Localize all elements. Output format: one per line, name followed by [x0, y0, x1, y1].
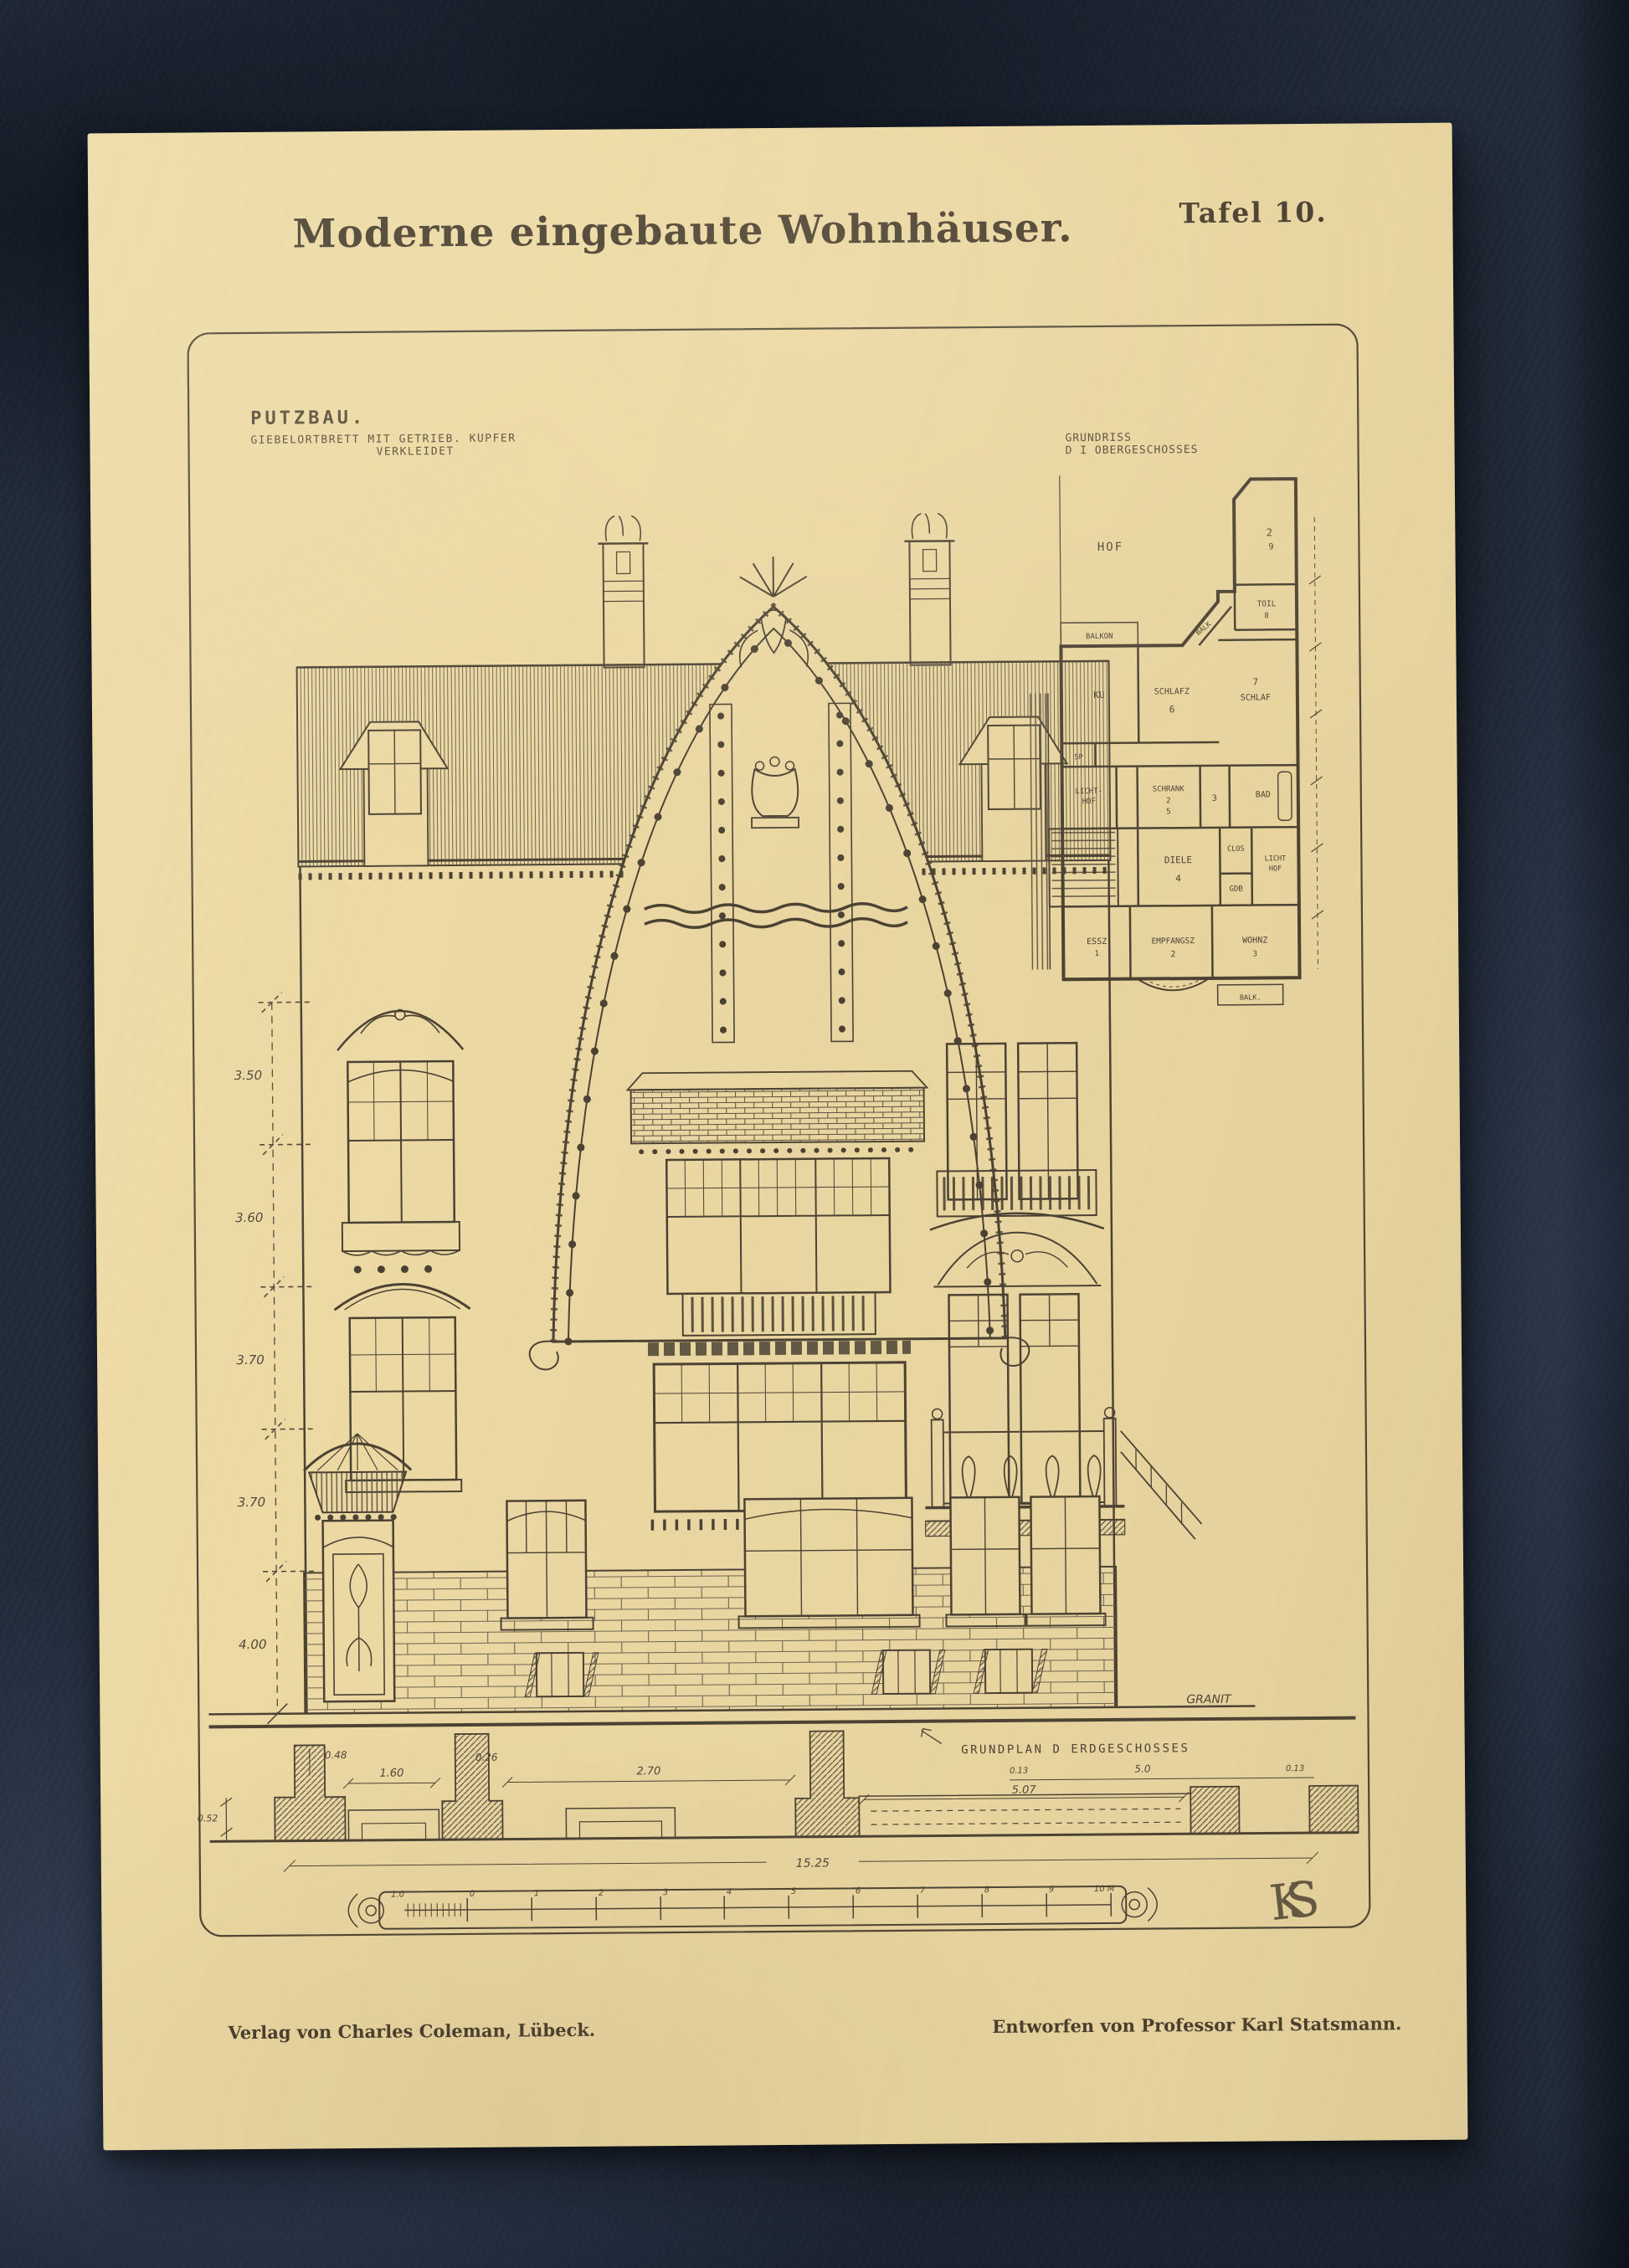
room-bad: BAD	[1256, 790, 1271, 799]
room-schrank-no2: 5	[1166, 808, 1171, 816]
room-diele-no: 4	[1175, 873, 1181, 884]
scale-tick-8: 8	[984, 1886, 989, 1895]
room-2: 2	[1267, 526, 1272, 538]
room-schlaf: SCHLAF	[1241, 693, 1271, 702]
room-essz: ESSZ	[1087, 937, 1107, 947]
subject-subtitle-1: GIEBELORTBRETT MIT GETRIEB. KUPFER	[250, 432, 516, 446]
room-lichthof-r2: HOF	[1269, 865, 1282, 873]
room-diele: DIELE	[1164, 854, 1192, 865]
scale-tick-5: 5	[791, 1887, 796, 1896]
dim-section-3: 0.26	[475, 1752, 498, 1763]
room-balk: BALK	[1195, 620, 1214, 638]
room-lichthof-l1: LICHT-	[1075, 788, 1102, 796]
scale-tick-6: 6	[856, 1886, 861, 1896]
room-balk-s: BALK.	[1240, 993, 1262, 1002]
room-lichthof-l2: HOF	[1082, 798, 1096, 806]
room-toil: TOIL	[1257, 599, 1277, 608]
scale-end-label: 10 M	[1094, 1885, 1115, 1894]
section-title: GRUNDPLAN D ERDGESCHOSSES	[961, 1742, 1190, 1757]
room-schrank-no: 2	[1166, 797, 1171, 805]
chimney-left	[598, 516, 649, 667]
room-schlafz-no: 6	[1169, 704, 1175, 715]
subject-subtitle-2: VERKLEIDET	[251, 444, 516, 459]
room-schlafz: SCHLAFZ	[1154, 687, 1190, 696]
plate-title: Moderne eingebaute Wohnhäuser.	[230, 205, 1134, 258]
room-empfangsz-no: 2	[1170, 950, 1175, 959]
room-balkon: BALKON	[1086, 633, 1113, 641]
scale-tick-7: 7	[920, 1886, 926, 1896]
scale-tick-1: 1	[534, 1889, 539, 1898]
chimney-right	[904, 513, 955, 664]
room-3: 3	[1212, 794, 1217, 803]
subject-label-block: PUTZBAU. GIEBELORTBRETT MIT GETRIEB. KUP…	[250, 406, 516, 459]
plan-dimension-chain	[1308, 517, 1323, 969]
room-toil-no: 8	[1264, 612, 1269, 620]
dim-right-2: 5.0	[1134, 1763, 1151, 1775]
dim-total: 15.25	[796, 1857, 830, 1870]
dim-height-1: 3.50	[234, 1068, 263, 1083]
scale-tick-9: 9	[1049, 1885, 1054, 1894]
room-wohnz: WOHNZ	[1242, 936, 1267, 945]
room-2-no: 9	[1268, 542, 1273, 552]
left-bay	[332, 1009, 472, 1492]
floorplan-title-1: GRUNDRISS	[1065, 431, 1198, 444]
subject-title: PUTZBAU.	[250, 406, 516, 428]
dim-height-5: 4.00	[239, 1637, 267, 1652]
designer-monogram: KS	[1267, 1870, 1319, 1932]
room-lichthof-r1: LICHT	[1265, 854, 1287, 863]
material-label: GRANIT	[1186, 1693, 1232, 1706]
scale-bar: 1.0 0 1 2 3 4 5 6 7 8 9 10 M	[348, 1884, 1157, 1929]
scale-sub-label: 1.0	[391, 1891, 404, 1900]
plate-paper: Tafel 10. Moderne eingebaute Wohnhäuser.…	[88, 123, 1468, 2151]
room-empfangsz: EMPFANGSZ	[1151, 936, 1195, 946]
room-sp: SP	[1074, 753, 1082, 762]
imprint-designer: Entworfen von Professor Karl Statsmann.	[992, 2013, 1401, 2037]
dim-height-left: 0.52	[198, 1813, 218, 1824]
room-gdb: GDB	[1230, 885, 1243, 894]
dim-height-2: 3.60	[235, 1210, 264, 1225]
scale-tick-0: 0	[470, 1890, 475, 1899]
room-ku: KU	[1093, 690, 1104, 700]
room-schlaf-no: 7	[1252, 676, 1258, 687]
dim-section-1: 0.48	[325, 1749, 347, 1761]
room-hof: HOF	[1097, 541, 1123, 554]
room-schrank: SCHRANK	[1153, 785, 1185, 793]
dim-height-4: 3.70	[238, 1495, 266, 1510]
dim-right-3: 0.13	[1286, 1764, 1304, 1773]
floorplan-title-2: D I OBERGESCHOSSES	[1066, 444, 1199, 457]
dim-height-3: 3.70	[236, 1352, 265, 1367]
dim-section-5: 5.07	[1012, 1784, 1037, 1797]
dim-section-4: 2.70	[636, 1765, 660, 1778]
scale-tick-4: 4	[727, 1887, 732, 1896]
room-wohnz-no: 3	[1253, 950, 1258, 958]
room-essz-no: 1	[1095, 950, 1100, 958]
floorplan-title-block: GRUNDRISS D I OBERGESCHOSSES	[1065, 431, 1198, 457]
scale-tick-3: 3	[663, 1888, 668, 1897]
dim-right-1: 0.13	[1010, 1767, 1028, 1776]
dim-section-2: 1.60	[379, 1768, 403, 1780]
plate-number: Tafel 10.	[1179, 196, 1328, 229]
photo-backdrop: Tafel 10. Moderne eingebaute Wohnhäuser.…	[0, 0, 1629, 2268]
scale-tick-2: 2	[599, 1889, 604, 1898]
imprint-publisher: Verlag von Charles Coleman, Lübeck.	[228, 2019, 595, 2043]
room-clos: CLOS	[1227, 845, 1245, 854]
